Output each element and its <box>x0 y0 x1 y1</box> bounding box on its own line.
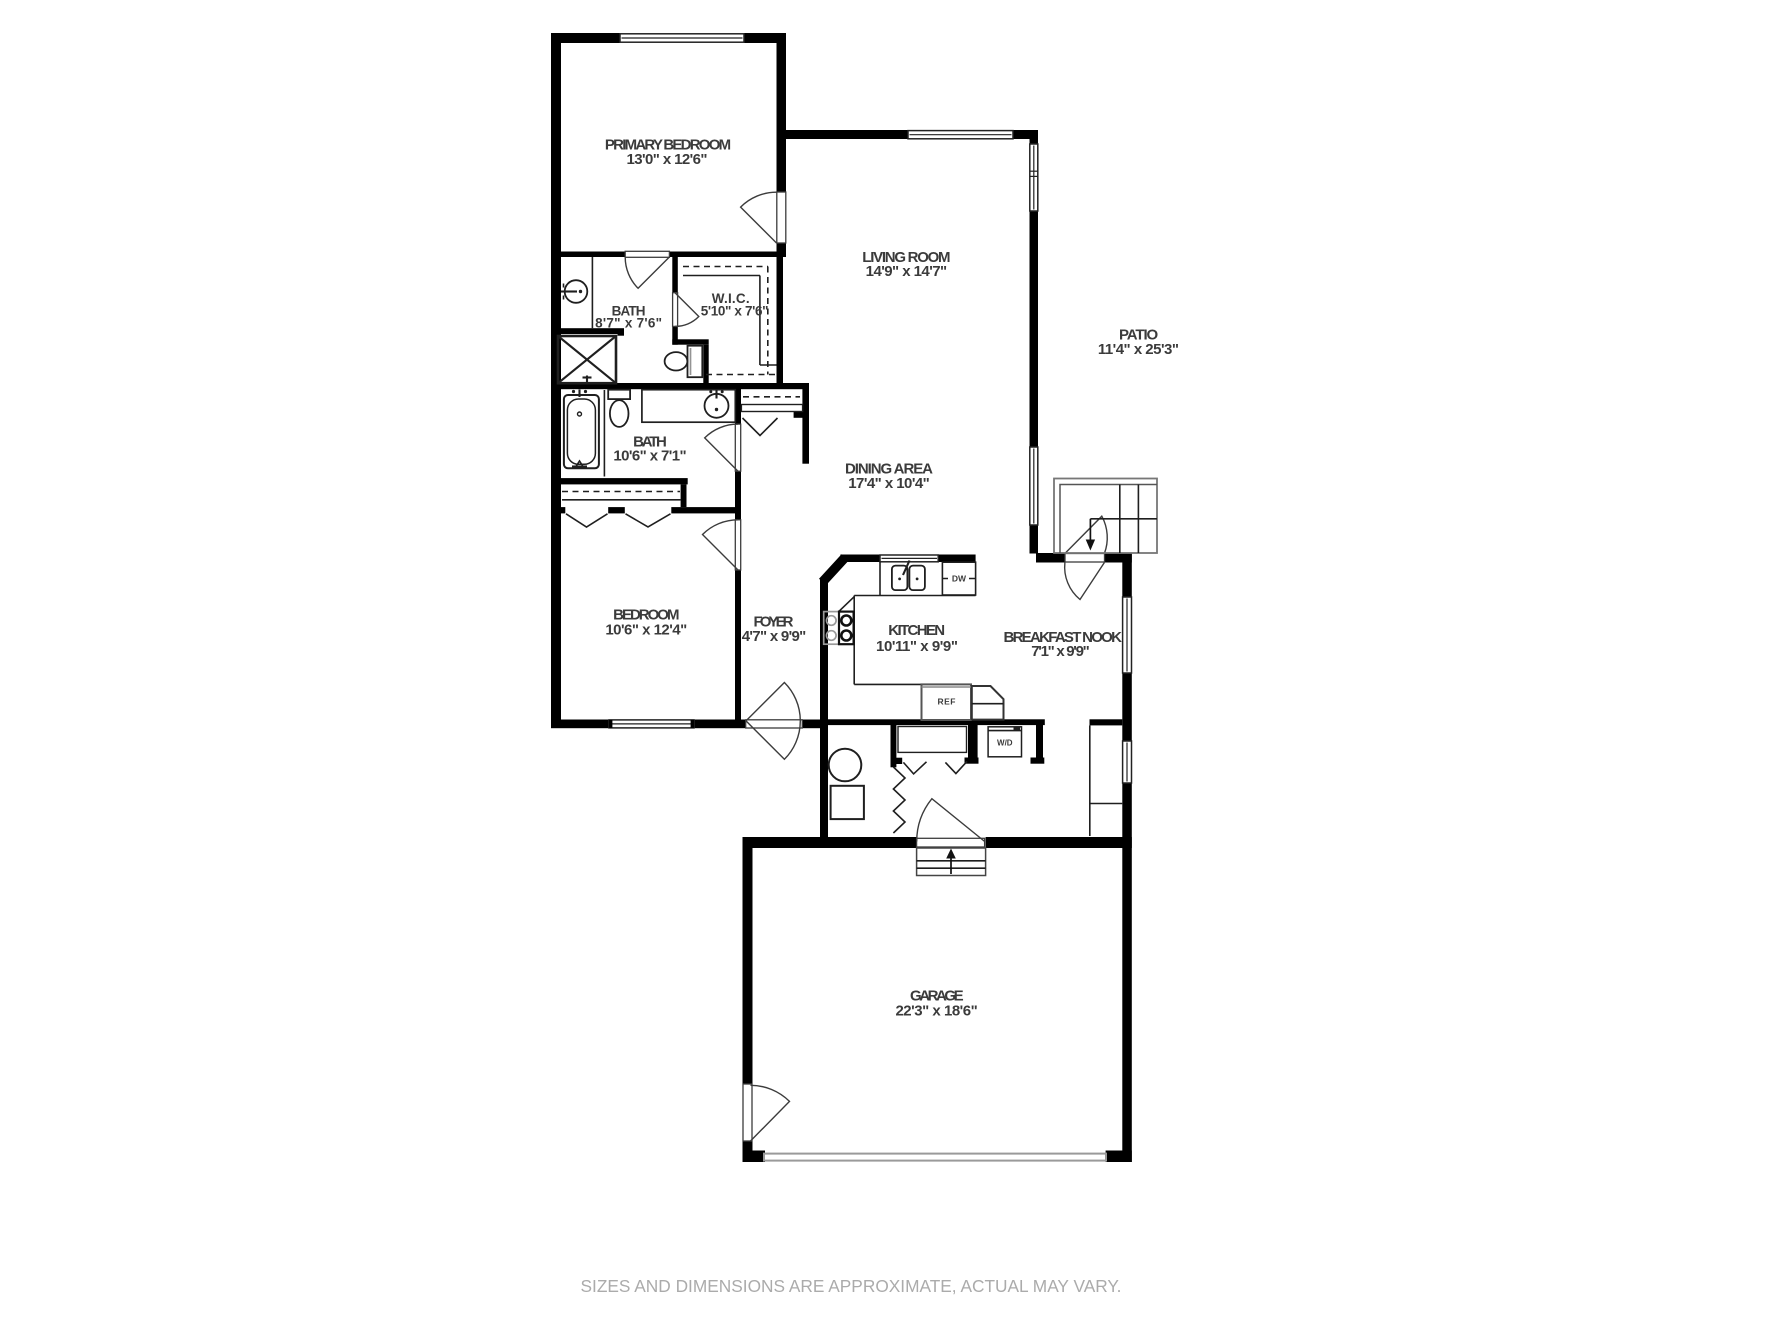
svg-text:17'4" x 10'4": 17'4" x 10'4" <box>848 475 930 492</box>
svg-text:13'0" x 12'6": 13'0" x 12'6" <box>626 151 707 168</box>
svg-text:22'3" x 18'6": 22'3" x 18'6" <box>895 1002 977 1019</box>
svg-text:10'11" x 9'9": 10'11" x 9'9" <box>876 638 958 655</box>
svg-text:14'9" x 14'7": 14'9" x 14'7" <box>866 263 948 280</box>
svg-text:8'7" x 7'6": 8'7" x 7'6" <box>595 316 662 331</box>
svg-text:W/D: W/D <box>997 739 1013 748</box>
svg-text:10'6" x 7'1": 10'6" x 7'1" <box>613 448 686 465</box>
svg-text:4'7" x 9'9": 4'7" x 9'9" <box>742 628 806 645</box>
svg-text:5'10" x 7'6": 5'10" x 7'6" <box>701 304 769 319</box>
svg-text:SIZES AND DIMENSIONS ARE APPRO: SIZES AND DIMENSIONS ARE APPROXIMATE, AC… <box>581 1276 1122 1296</box>
svg-text:DW: DW <box>952 573 967 583</box>
svg-text:KITCHEN: KITCHEN <box>888 622 945 639</box>
svg-text:7'1" x 9'9": 7'1" x 9'9" <box>1031 643 1090 660</box>
svg-text:REF: REF <box>938 697 956 707</box>
svg-text:10'6" x 12'4": 10'6" x 12'4" <box>605 621 687 638</box>
svg-text:11'4" x 25'3": 11'4" x 25'3" <box>1098 341 1179 358</box>
